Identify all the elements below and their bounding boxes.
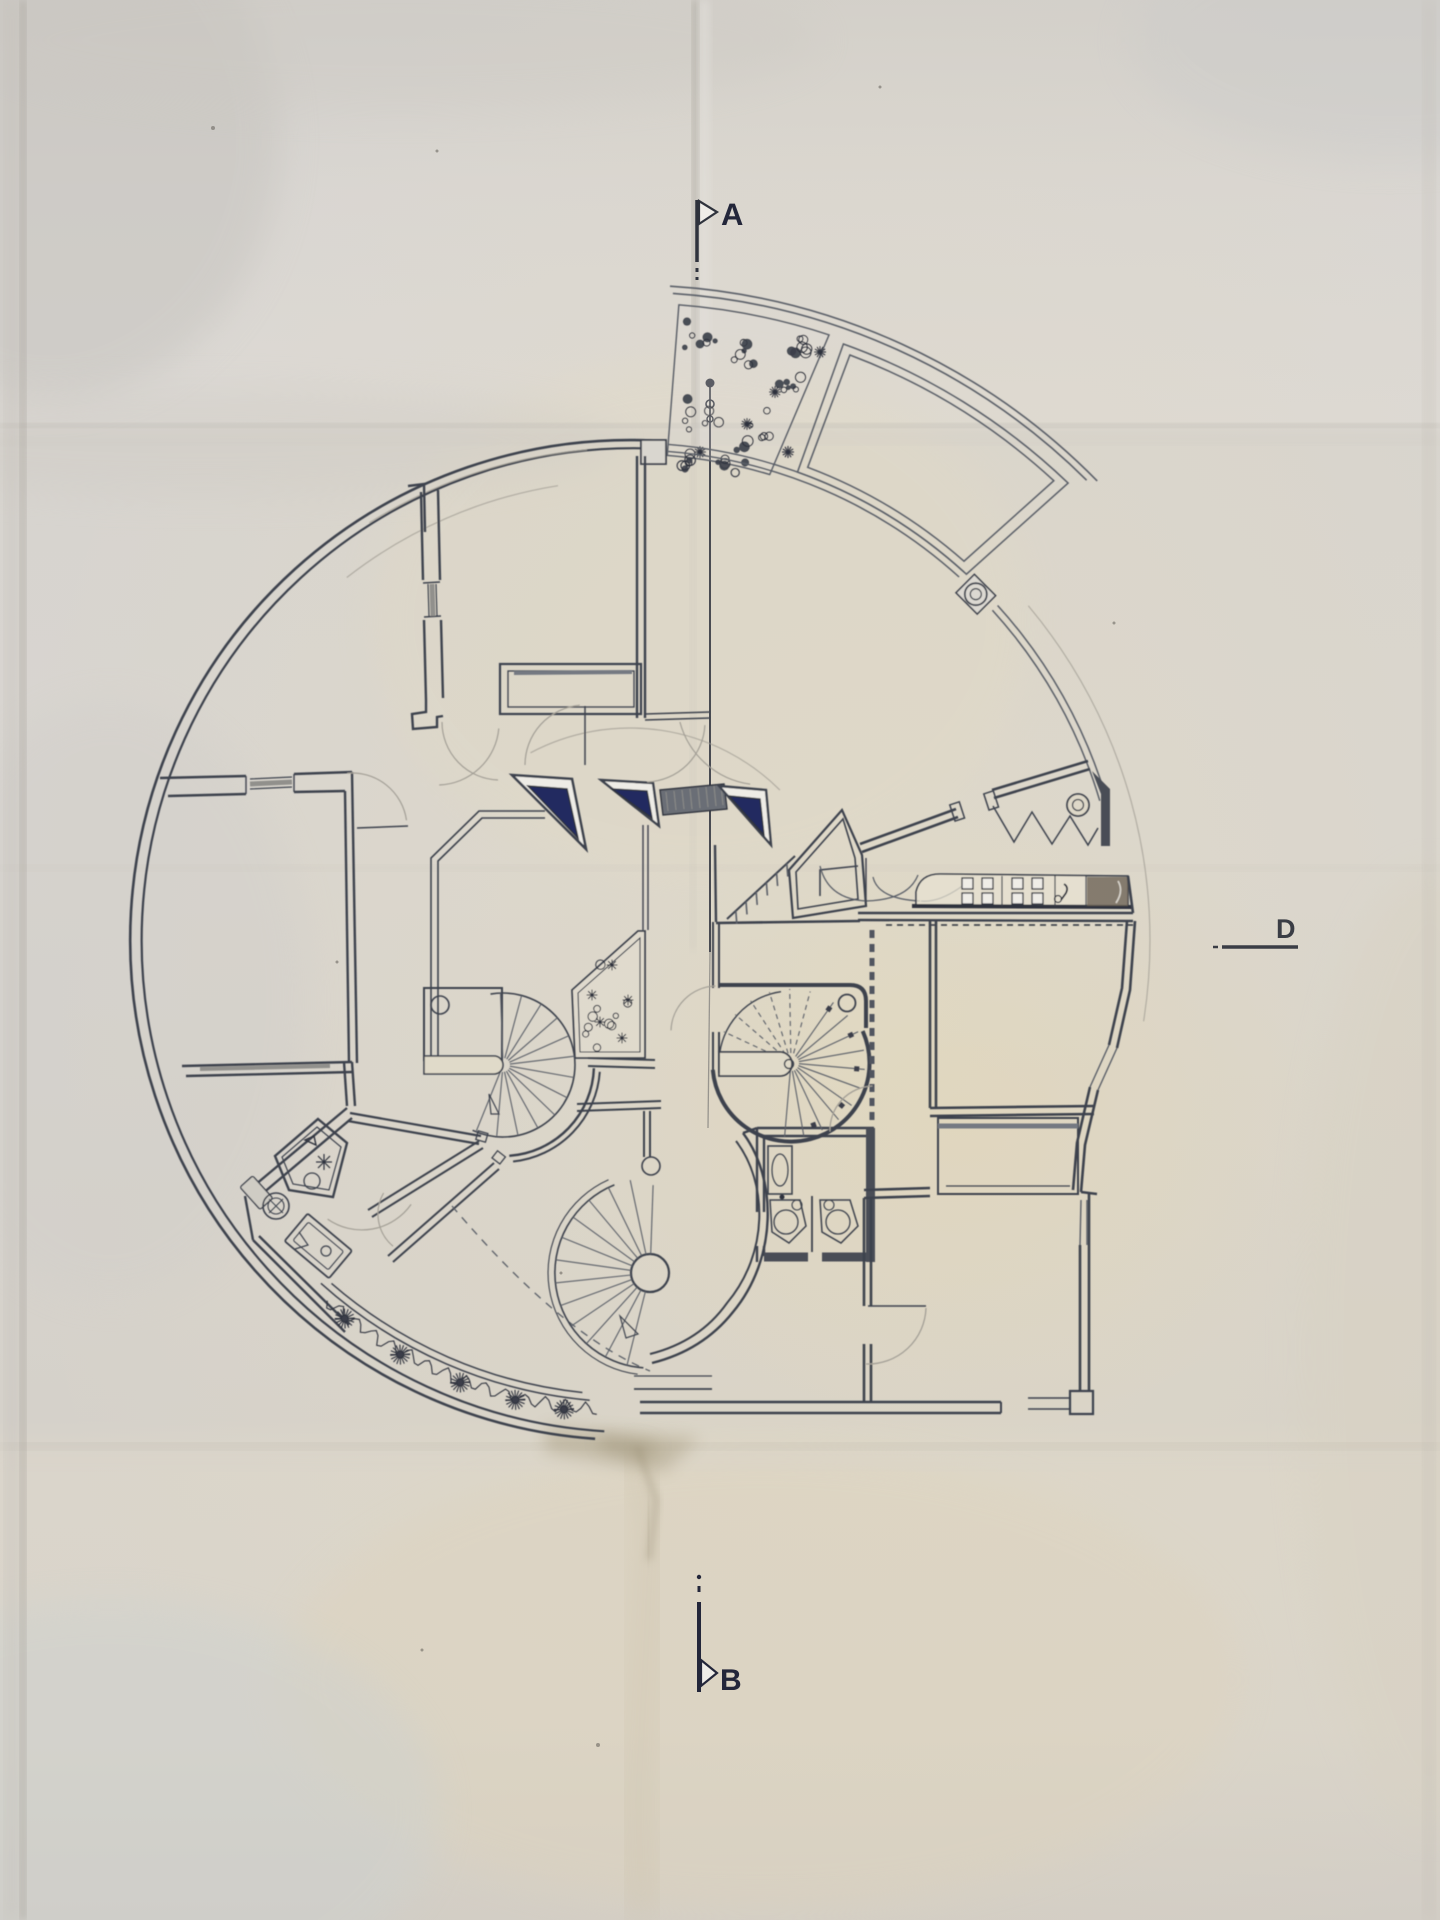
svg-text:A: A (721, 197, 743, 232)
svg-text:B: B (720, 1664, 742, 1697)
svg-text:D: D (1276, 914, 1296, 944)
